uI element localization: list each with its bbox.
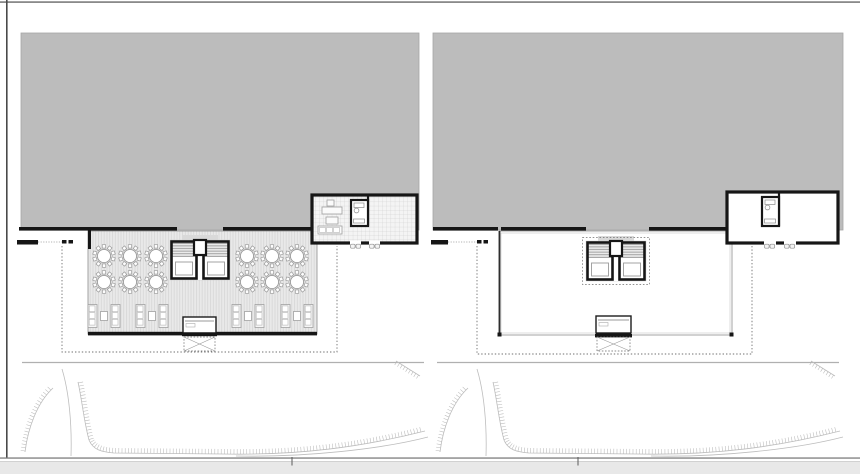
- sink: [765, 200, 775, 205]
- chair: [163, 277, 167, 281]
- cushion: [89, 319, 95, 325]
- hatch-tick: [39, 398, 43, 401]
- hatch-tick: [821, 368, 823, 371]
- hatch-tick: [90, 440, 94, 443]
- hatch-tick: [763, 441, 764, 446]
- hatch-tick: [411, 372, 413, 375]
- hatch-tick: [86, 426, 91, 427]
- toilet-tank: [765, 219, 776, 223]
- window-bottom-band: [0, 461, 860, 474]
- chair: [254, 283, 258, 287]
- hatch-tick: [100, 446, 102, 451]
- hatch-tick: [439, 434, 443, 435]
- hatch-tick: [458, 392, 462, 395]
- contour-line-left: [477, 369, 486, 456]
- hatch-tick: [88, 435, 93, 436]
- embankment-arc-left: [440, 388, 468, 452]
- hatch-tick: [414, 429, 415, 434]
- chair: [93, 283, 97, 287]
- hatch-tick: [818, 367, 820, 370]
- hatch-tick: [21, 450, 25, 451]
- hatch-tick: [323, 445, 324, 450]
- hatch-tick: [25, 431, 29, 432]
- facade-wall: [649, 227, 729, 231]
- column-mark: [69, 240, 74, 244]
- hatch-tick: [85, 423, 90, 424]
- chair: [119, 257, 123, 261]
- hatch-tick: [416, 375, 418, 378]
- hatch-tick: [732, 445, 733, 450]
- hatch-tick: [407, 430, 408, 435]
- chair: [295, 271, 298, 274]
- hatch-tick: [397, 363, 399, 366]
- hatch-tick: [33, 409, 37, 411]
- hatch-tick: [498, 407, 503, 408]
- hatch-tick: [496, 395, 501, 396]
- hatch-tick: [87, 432, 92, 433]
- hatch-tick: [515, 446, 517, 451]
- hatch-tick: [782, 438, 783, 443]
- hatch-tick: [37, 400, 41, 402]
- hatch-tick: [494, 385, 499, 386]
- hatch-tick: [389, 434, 390, 439]
- hatch-tick: [524, 448, 525, 453]
- hatch-tick: [45, 389, 48, 392]
- hatch-tick: [496, 398, 501, 399]
- chair: [261, 257, 265, 261]
- column-mark: [484, 240, 489, 244]
- hatch-tick: [815, 365, 817, 368]
- chair: [286, 277, 290, 281]
- hatch-tick: [460, 389, 463, 392]
- cushion: [305, 306, 311, 312]
- door-leaf: [375, 244, 380, 248]
- coffee-table: [326, 217, 338, 224]
- hatch-tick: [822, 430, 823, 435]
- hatch-tick: [332, 444, 333, 449]
- hatch-tick: [24, 434, 28, 435]
- cushion: [160, 319, 166, 325]
- hatch-tick: [83, 411, 88, 412]
- frame-top-line: [0, 1, 860, 3]
- hatch-tick: [43, 392, 47, 395]
- chair: [111, 277, 115, 281]
- hatch-tick: [414, 373, 416, 376]
- cushion: [282, 306, 288, 312]
- chair: [279, 277, 283, 281]
- cushion: [334, 228, 340, 233]
- hatch-tick: [370, 438, 371, 443]
- hatch-tick: [747, 444, 748, 449]
- hatch-tick: [825, 429, 826, 434]
- chair: [236, 277, 240, 281]
- hatch-tick: [36, 403, 40, 405]
- hatch-tick: [766, 441, 767, 446]
- door-leaf: [351, 244, 356, 248]
- chair: [102, 264, 105, 267]
- hatch-tick: [499, 417, 504, 418]
- hatch-tick: [735, 445, 736, 450]
- hatch-tick: [757, 442, 758, 447]
- toilet-bowl: [765, 205, 770, 210]
- hatch-tick: [89, 438, 94, 439]
- chair: [245, 290, 248, 293]
- hatch-tick: [83, 407, 88, 408]
- chair: [154, 264, 157, 267]
- drawing-viewport: [0, 0, 860, 474]
- table-top: [240, 275, 253, 288]
- floor-plan-panel-right: [431, 33, 843, 456]
- hatch-tick: [791, 437, 792, 442]
- hatch-tick: [29, 418, 33, 420]
- chair: [119, 251, 123, 255]
- chair: [93, 251, 97, 255]
- chair: [245, 271, 248, 274]
- hatch-tick: [25, 428, 29, 429]
- hatch-tick: [436, 450, 440, 451]
- hatch-tick: [84, 417, 89, 418]
- door-leaf: [790, 244, 795, 248]
- cushion: [320, 228, 326, 233]
- table-top: [265, 249, 278, 262]
- hatch-tick: [810, 433, 811, 438]
- hatch-tick: [754, 443, 755, 448]
- embankment-arc-left: [25, 388, 53, 452]
- hatch-tick: [436, 447, 440, 448]
- hatch-tick: [342, 442, 343, 447]
- service-room: [727, 192, 838, 248]
- cushion: [256, 306, 262, 312]
- hatch-tick: [354, 441, 355, 446]
- hatch-tick: [454, 398, 458, 401]
- hatch-tick: [760, 442, 761, 447]
- cushion: [282, 313, 288, 319]
- embankment-main: [493, 382, 840, 454]
- hatch-tick: [512, 445, 514, 449]
- hatch-tick: [97, 445, 99, 449]
- chair: [286, 251, 290, 255]
- hatch-tick: [26, 425, 30, 426]
- hatch-tick: [445, 415, 449, 417]
- hatch-tick: [829, 373, 831, 376]
- door-leaf: [370, 244, 375, 248]
- table-top: [123, 249, 136, 262]
- cushion: [137, 306, 143, 312]
- chair: [137, 277, 141, 281]
- chair: [145, 251, 149, 255]
- hatch-tick: [78, 382, 83, 383]
- hatch-tick: [401, 432, 402, 437]
- chair: [270, 245, 273, 248]
- hatch-tick: [502, 429, 507, 430]
- door-leaf: [356, 244, 361, 248]
- hatch-tick: [448, 409, 452, 411]
- chair: [102, 271, 105, 274]
- cushion: [137, 319, 143, 325]
- hatch-tick: [82, 404, 87, 405]
- hatch-tick: [408, 370, 410, 373]
- hatch-tick: [34, 406, 38, 408]
- cushion: [112, 319, 118, 325]
- hatch-tick: [364, 439, 365, 444]
- chair: [236, 251, 240, 255]
- chair: [245, 264, 248, 267]
- planter-box: [183, 317, 216, 333]
- hatch-tick: [835, 427, 836, 432]
- cushion: [327, 228, 333, 233]
- stair-landing-right: [624, 263, 641, 276]
- cushion: [137, 313, 143, 319]
- hatch-tick: [502, 432, 507, 433]
- table-top: [290, 249, 303, 262]
- chair: [102, 245, 105, 248]
- hatch-tick: [507, 442, 511, 445]
- hatch-tick: [21, 447, 25, 448]
- chair: [111, 283, 115, 287]
- facade-wall: [223, 227, 313, 231]
- chair: [93, 277, 97, 281]
- side-table: [294, 312, 301, 321]
- chair: [111, 257, 115, 261]
- chair: [304, 283, 308, 287]
- baseline-tick: [292, 457, 293, 466]
- hatch-tick: [503, 435, 508, 436]
- hatch-tick: [449, 406, 453, 408]
- sink: [354, 203, 364, 208]
- cushion: [256, 319, 262, 325]
- site-terrain: [436, 361, 843, 456]
- hatch-tick: [501, 426, 506, 427]
- hatch-tick: [494, 388, 499, 389]
- hatch-tick: [361, 440, 362, 445]
- retaining-wall-stub: [17, 240, 38, 245]
- hatch-tick: [373, 437, 374, 442]
- cushion: [160, 313, 166, 319]
- deck-edge-wall: [499, 231, 501, 335]
- contour-line-bottom: [651, 437, 843, 456]
- hatch-tick: [420, 427, 421, 432]
- cushion: [160, 306, 166, 312]
- hatch-tick: [801, 435, 802, 440]
- table-top: [149, 249, 162, 262]
- door-leaf: [785, 244, 790, 248]
- facade-wall: [433, 227, 498, 231]
- hatch-tick: [404, 431, 405, 436]
- chair: [128, 271, 131, 274]
- hatch-tick: [504, 438, 509, 439]
- hatch-tick: [440, 431, 444, 432]
- hatch-tick: [27, 422, 31, 423]
- floor-plan-panel-left: [17, 33, 428, 456]
- chair: [304, 257, 308, 261]
- hatch-tick: [779, 439, 780, 444]
- stage-planter: [595, 316, 632, 351]
- chair: [163, 257, 167, 261]
- hatch-tick: [441, 425, 445, 426]
- facade-wall: [501, 227, 586, 231]
- deck-corner-column: [498, 333, 502, 337]
- chair: [154, 290, 157, 293]
- chair: [93, 257, 97, 261]
- cushion: [112, 306, 118, 312]
- hatch-tick: [498, 411, 503, 412]
- chair: [137, 283, 141, 287]
- chair: [304, 277, 308, 281]
- hatch-tick: [521, 447, 522, 452]
- chair: [119, 277, 123, 281]
- contour-line-left: [62, 369, 71, 456]
- hatch-tick: [94, 443, 97, 447]
- hatch-tick: [819, 431, 820, 436]
- hatch-tick: [823, 370, 825, 373]
- hatch-tick: [81, 398, 86, 399]
- column-mark: [477, 240, 482, 244]
- chair: [154, 271, 157, 274]
- chair: [261, 251, 265, 255]
- hatch-tick: [103, 447, 104, 452]
- site-terrain: [21, 361, 428, 456]
- hatch-tick: [816, 432, 817, 437]
- chair: [128, 245, 131, 248]
- table-top: [97, 249, 110, 262]
- chair: [286, 283, 290, 287]
- chair: [279, 257, 283, 261]
- cushion: [89, 306, 95, 312]
- hatch-tick: [776, 440, 777, 445]
- hatch-tick: [345, 442, 346, 447]
- hatch-tick: [744, 444, 745, 449]
- hatch-tick: [48, 387, 51, 390]
- stair-landing-right: [208, 262, 225, 275]
- frame-left-line: [6, 0, 8, 458]
- hatch-tick: [437, 444, 441, 445]
- hatch-tick: [499, 414, 504, 415]
- hatch-tick: [788, 437, 789, 442]
- planter-base-wall: [182, 332, 217, 336]
- hatch-tick: [79, 388, 84, 389]
- hatch-tick: [497, 401, 502, 402]
- room-walls: [727, 192, 838, 243]
- chair: [295, 290, 298, 293]
- chair: [295, 245, 298, 248]
- chair: [270, 264, 273, 267]
- hatch-tick: [410, 429, 411, 434]
- toilet-tank: [354, 219, 365, 223]
- side-table: [149, 312, 156, 321]
- hatch-tick: [326, 444, 327, 449]
- stair-core: [170, 235, 230, 280]
- hatch-tick: [812, 363, 814, 366]
- embankment-main: [78, 382, 425, 454]
- stair-core: [583, 236, 650, 285]
- hatch-tick: [826, 372, 828, 375]
- hatch-tick: [398, 432, 399, 437]
- toilet-bowl: [354, 208, 359, 213]
- chair: [304, 251, 308, 255]
- chair: [111, 251, 115, 255]
- hatch-tick: [785, 438, 786, 443]
- baseline-tick: [578, 457, 579, 466]
- chair: [137, 251, 141, 255]
- cushion: [233, 319, 239, 325]
- hatch-tick: [518, 447, 519, 452]
- hatch-tick: [85, 420, 90, 421]
- chair: [279, 283, 283, 287]
- stage-planter: [182, 317, 217, 351]
- hatch-tick: [738, 445, 739, 450]
- hatch-tick: [509, 443, 512, 447]
- hatch-tick: [437, 441, 441, 442]
- cushion: [305, 313, 311, 319]
- hatch-tick: [500, 420, 505, 421]
- chair: [145, 277, 149, 281]
- cushion: [282, 319, 288, 325]
- cushion: [233, 306, 239, 312]
- hatch-tick: [495, 392, 500, 393]
- hatch-tick: [31, 412, 35, 414]
- table-top: [149, 275, 162, 288]
- hatch-tick: [41, 395, 45, 398]
- retaining-wall-stub: [431, 240, 448, 245]
- chair: [245, 245, 248, 248]
- frame-bottom-line: [0, 457, 860, 458]
- hatch-tick: [794, 436, 795, 441]
- table-top: [265, 275, 278, 288]
- hatch-tick: [831, 375, 833, 378]
- hatch-tick: [317, 445, 318, 450]
- hatch-tick: [30, 415, 34, 417]
- hatch-tick: [505, 440, 509, 443]
- hatch-tick: [452, 400, 456, 402]
- hatch-tick: [351, 441, 352, 446]
- hatch-tick: [772, 440, 773, 445]
- hatch-tick: [446, 412, 450, 414]
- chair: [261, 277, 265, 281]
- chair: [137, 257, 141, 261]
- hatch-tick: [22, 441, 26, 442]
- chair: [254, 257, 258, 261]
- chair: [102, 290, 105, 293]
- chair: [286, 257, 290, 261]
- hatch-tick: [451, 403, 455, 405]
- cushion: [305, 319, 311, 325]
- service-room: [312, 195, 417, 248]
- hatch-tick: [444, 418, 448, 420]
- hatch-tick: [440, 428, 444, 429]
- floor-plan-drawing: [0, 0, 860, 474]
- hatch-tick: [379, 436, 380, 441]
- hatch-tick: [335, 443, 336, 448]
- hatch-tick: [392, 434, 393, 439]
- chair: [163, 283, 167, 287]
- hatch-tick: [493, 382, 498, 383]
- chair: [270, 271, 273, 274]
- wall-stub: [88, 230, 91, 249]
- cushion: [233, 313, 239, 319]
- facade-wall: [19, 227, 177, 231]
- hatch-tick: [81, 395, 86, 396]
- hatch-tick: [832, 428, 833, 433]
- contour-line-bottom: [236, 437, 428, 456]
- chair: [128, 264, 131, 267]
- hatch-tick: [92, 442, 96, 445]
- hatch-tick: [109, 448, 110, 453]
- hatch-tick: [80, 392, 85, 393]
- chair: [261, 283, 265, 287]
- desk-chair: [327, 200, 334, 206]
- hatch-tick: [400, 365, 402, 368]
- table-top: [97, 275, 110, 288]
